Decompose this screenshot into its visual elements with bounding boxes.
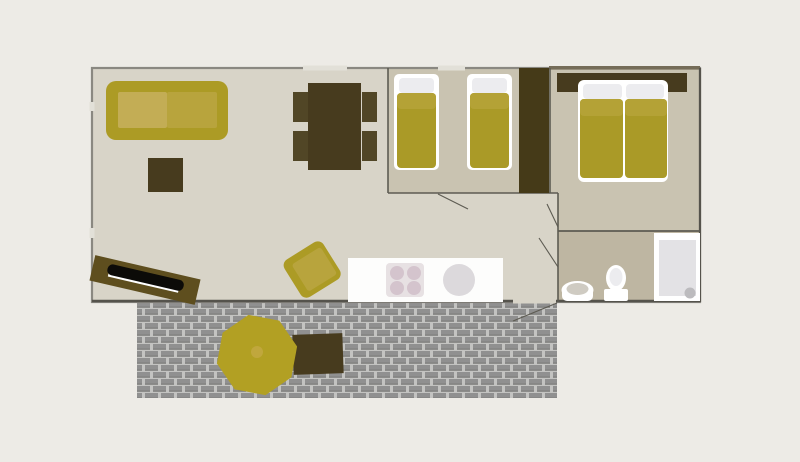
coffee-table (148, 158, 183, 192)
pillow-right (626, 84, 664, 99)
sofa (106, 81, 228, 140)
mattress-band (470, 93, 509, 109)
window-left-2 (90, 228, 95, 238)
entrance-door-gap (513, 300, 556, 304)
twin-bed-2 (467, 74, 512, 170)
kitchen-counter (348, 258, 503, 302)
kitchen-sink (443, 264, 475, 296)
stove-burner (390, 266, 404, 280)
stove-burner (407, 266, 421, 280)
kitchen (348, 258, 503, 302)
chair-top-left (293, 92, 308, 122)
pillow (472, 78, 507, 93)
double-bedroom-floor-lower (558, 193, 700, 231)
wardrobe (519, 68, 549, 193)
bathroom-sink-basin (567, 283, 589, 295)
toilet-bowl-inner (610, 268, 623, 286)
parasol-pole (251, 346, 263, 358)
chair-top-right (362, 92, 377, 122)
window-top-2 (438, 66, 465, 71)
mattress-band-right (625, 99, 667, 116)
chair-bottom-right (362, 131, 377, 161)
window-left-1 (90, 102, 95, 111)
deck (137, 303, 557, 398)
shower-drain (685, 288, 696, 299)
mattress-band (397, 93, 436, 109)
deck-table (292, 333, 343, 375)
chair-bottom-left (293, 131, 308, 161)
pillow-left (583, 84, 622, 99)
pillow (399, 78, 434, 93)
mattress-band-left (580, 99, 623, 116)
top-wall-dark-segment (549, 66, 700, 70)
sofa-cushion-right (167, 92, 217, 128)
window-top-1 (303, 66, 347, 71)
dining-table (308, 83, 361, 170)
floor-plan (0, 0, 800, 462)
stove-burner (390, 281, 404, 295)
twin-bed-1 (394, 74, 439, 170)
sofa-cushion-left (118, 92, 167, 128)
stove-burner (407, 281, 421, 295)
